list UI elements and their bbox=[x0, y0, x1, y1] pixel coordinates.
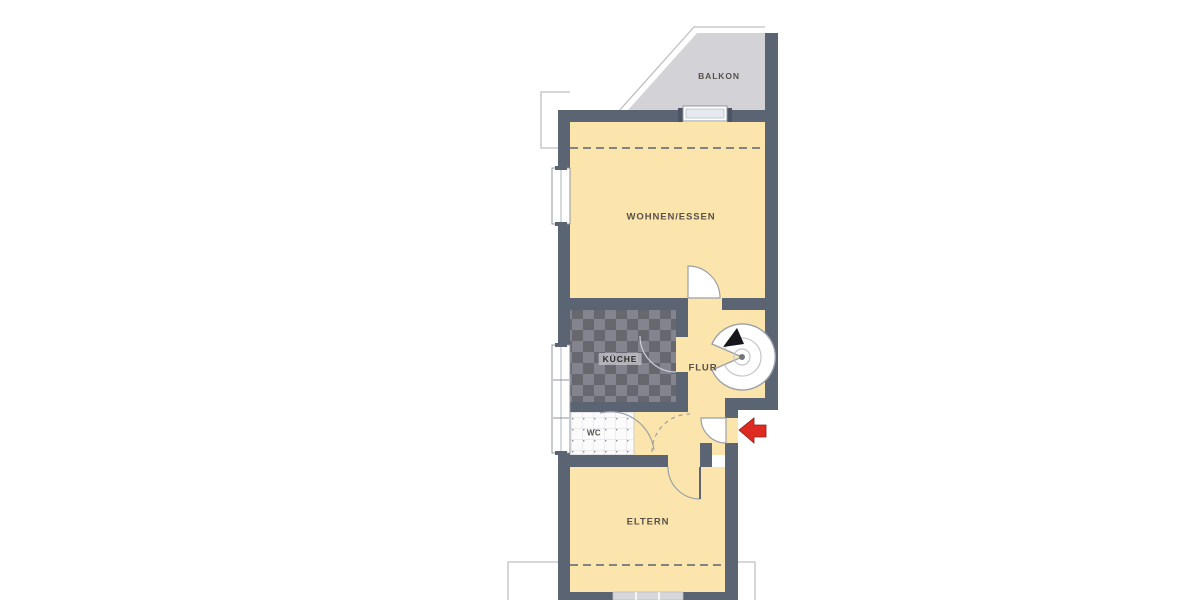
window-balcony-door bbox=[678, 106, 732, 122]
floor-eltern bbox=[570, 467, 725, 592]
wall-bottom-b bbox=[683, 592, 738, 600]
wall-kitchen-right-a bbox=[676, 310, 688, 337]
wall-bottom-a bbox=[558, 592, 613, 600]
wall-stub-entry bbox=[700, 443, 712, 467]
wall-wohnen-south-a bbox=[558, 298, 688, 310]
wall-wohnen-south-b bbox=[722, 298, 765, 310]
balcony-area bbox=[618, 27, 765, 112]
floor-plan-drawing bbox=[0, 0, 1200, 600]
window-kitchen-left bbox=[552, 343, 570, 455]
entrance-arrow-icon bbox=[739, 418, 766, 443]
room-label-flur: FLUR bbox=[689, 363, 718, 374]
wall-flur-eltern bbox=[558, 455, 668, 467]
wall-kitchen-wc bbox=[558, 402, 688, 412]
wc-floor-tiles bbox=[570, 412, 634, 455]
room-label-balkon: BALKON bbox=[698, 71, 740, 81]
room-label-kueche: KÜCHE bbox=[599, 353, 642, 365]
window-eltern-bottom bbox=[613, 592, 683, 600]
room-label-wohnen-essen: WOHNEN/ESSEN bbox=[627, 212, 716, 223]
room-label-eltern: ELTERN bbox=[627, 517, 670, 528]
window-living-left bbox=[552, 166, 570, 226]
wall-top-left bbox=[558, 110, 682, 122]
wall-right-lower bbox=[725, 443, 738, 600]
wall-step bbox=[725, 398, 778, 410]
floor-plan-page: OBERGESCHOSS bbox=[0, 0, 1200, 600]
stair-center-post bbox=[739, 354, 745, 360]
room-label-wc: WC bbox=[587, 429, 601, 438]
